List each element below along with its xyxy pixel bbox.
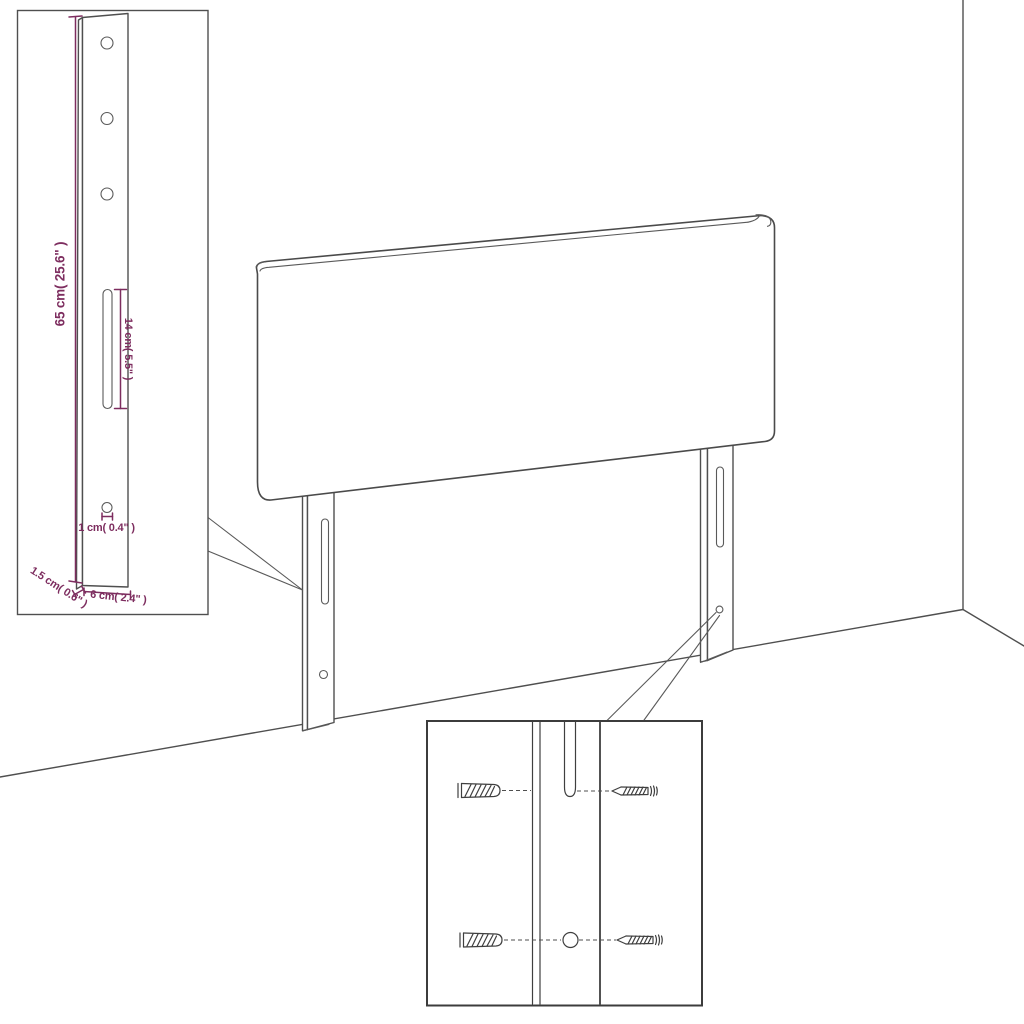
right-leg — [701, 426, 734, 663]
floor-line-right — [963, 610, 1024, 647]
callout-line — [606, 613, 716, 722]
right-leg-front-face — [708, 426, 734, 661]
left-leg-side-face — [303, 469, 308, 731]
headboard-panel-face — [257, 216, 775, 501]
diagram-canvas: 65 cm( 25.6" ) 14 cm( 5.5" ) 1 cm( 0.4" … — [0, 0, 1024, 1024]
left-leg — [303, 466, 335, 731]
left-callout-lines — [208, 518, 303, 591]
left-leg-front-face — [308, 466, 335, 730]
callout-line — [643, 616, 720, 722]
callout-line — [208, 518, 303, 591]
callout-line — [208, 551, 303, 590]
detail-inset-leg: 65 cm( 25.6" ) 14 cm( 5.5" ) 1 cm( 0.4" … — [18, 11, 209, 615]
dimension-hole-label: 1 cm( 0.4" ) — [78, 522, 135, 534]
assembly-diagram: 65 cm( 25.6" ) 14 cm( 5.5" ) 1 cm( 0.4" … — [0, 0, 1024, 1024]
dimension-tick — [69, 16, 82, 17]
dimension-height-label: 65 cm( 25.6" ) — [53, 242, 68, 327]
dimension-slot-label: 14 cm( 5.5" ) — [122, 318, 134, 381]
headboard-panel — [256, 215, 775, 500]
detail-inset-mounting — [427, 721, 702, 1006]
